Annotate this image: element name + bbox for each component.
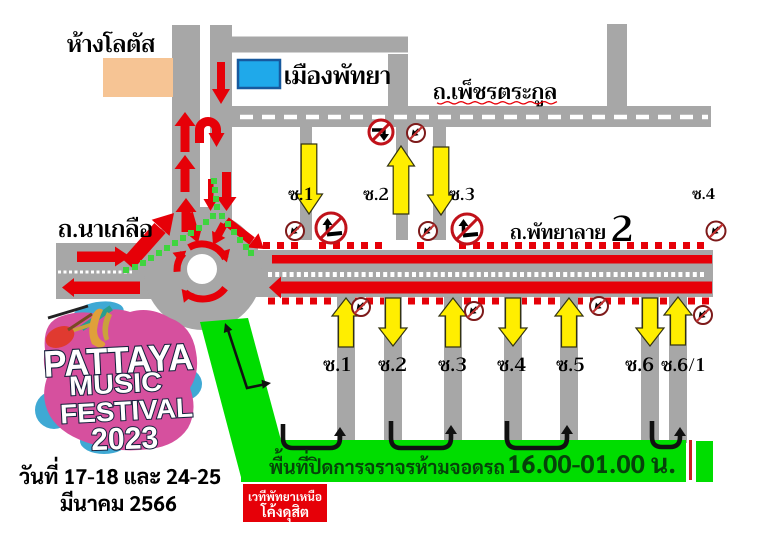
svg-text:2023: 2023 bbox=[91, 420, 159, 457]
